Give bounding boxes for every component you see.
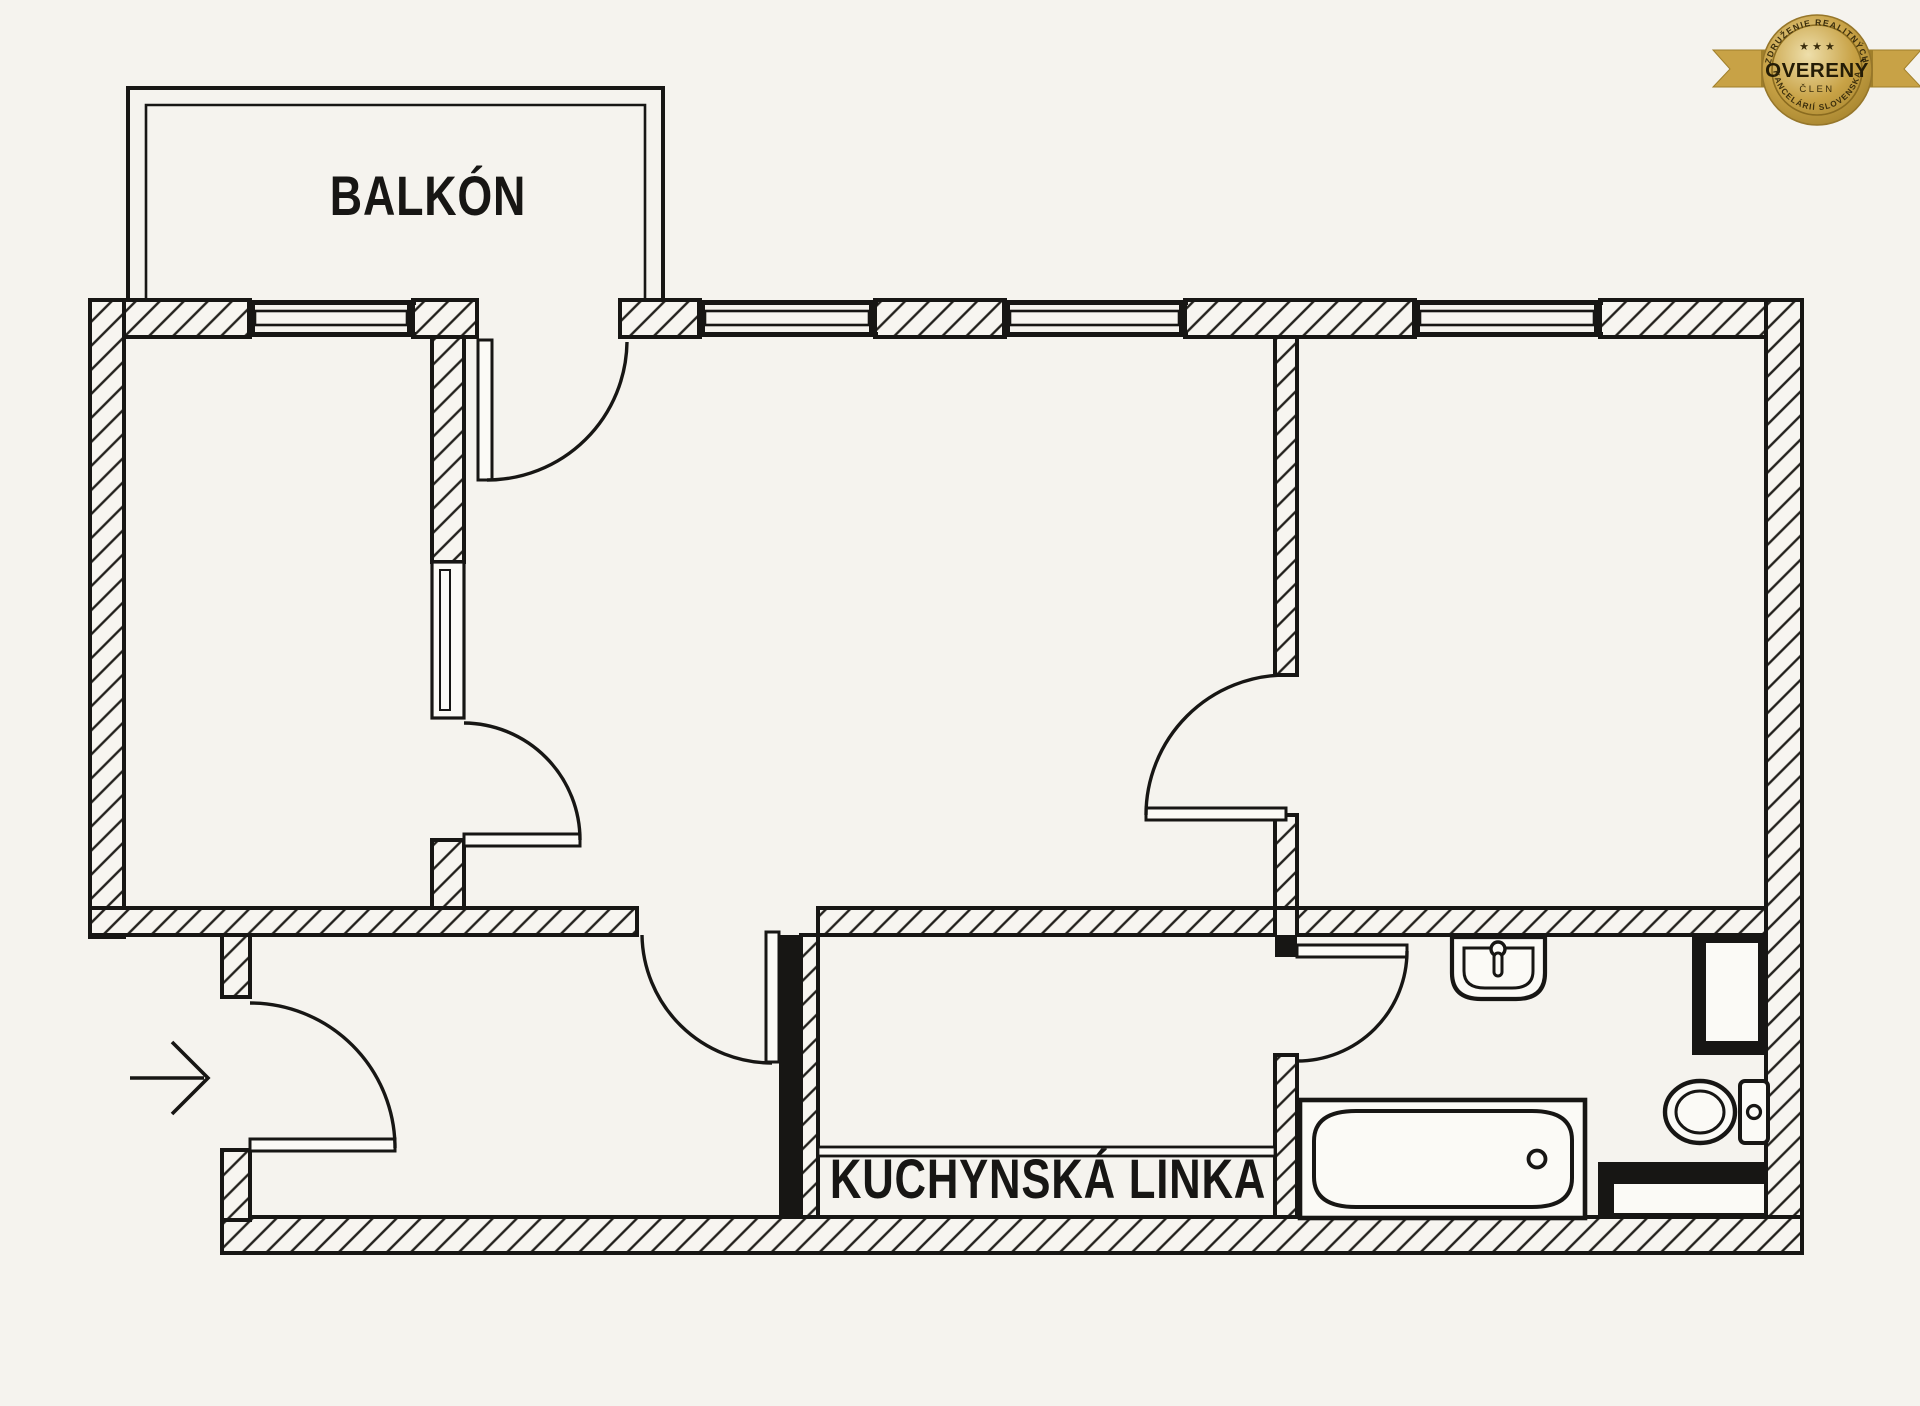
sink xyxy=(1452,937,1545,999)
wall-top-pier4 xyxy=(1185,300,1415,337)
bathtub xyxy=(1300,1100,1585,1218)
wall-entry-stub-top xyxy=(222,935,250,997)
wall-right xyxy=(1766,300,1802,1253)
wall-partition-right-bottom xyxy=(1275,815,1297,908)
wall-partition-right-top xyxy=(1275,337,1297,675)
wall-partition-left-top xyxy=(432,337,464,562)
wall-kitchen-divider-hatched xyxy=(801,935,818,1217)
wall-entry-stub-bottom xyxy=(222,1150,250,1220)
wall-top-pier1 xyxy=(413,300,477,337)
badge-member-text: ČLEN xyxy=(1799,84,1834,95)
badge-stars-icon: ★ ★ ★ xyxy=(1799,41,1835,53)
wall-kitchen-divider-solid xyxy=(779,935,799,1217)
bathtub-drain xyxy=(1529,1151,1546,1168)
wc-separator-cap xyxy=(1598,1162,1612,1218)
kitchen-label: KUCHYNSKÁ LINKA xyxy=(830,1148,1266,1210)
wall-mid-left xyxy=(90,908,637,935)
sink-faucet-stem xyxy=(1494,953,1502,976)
wc-separator-wall xyxy=(1598,1162,1766,1182)
wall-left xyxy=(90,300,124,937)
wall-top-pier3 xyxy=(875,300,1005,337)
wall-bottom xyxy=(222,1217,1802,1253)
wall-mid-center xyxy=(818,908,1275,935)
toilet xyxy=(1665,1081,1768,1143)
wall-bath-door-stub xyxy=(1275,935,1297,957)
wall-bathroom-left xyxy=(1275,1055,1297,1217)
floorplan-canvas: BALKÓN xyxy=(0,0,1920,1406)
balcony-label: BALKÓN xyxy=(330,164,526,227)
floorplan-page: BALKÓN xyxy=(0,0,1920,1406)
toilet-flush-button xyxy=(1748,1106,1761,1119)
radiator-niche xyxy=(1612,1182,1766,1215)
wall-mid-right xyxy=(1297,908,1766,935)
utility-shaft-inner xyxy=(1706,943,1758,1041)
wall-partition-left-bottom xyxy=(432,840,464,908)
wall-top-pier2 xyxy=(620,300,700,337)
shaft-inner-line xyxy=(440,570,450,710)
